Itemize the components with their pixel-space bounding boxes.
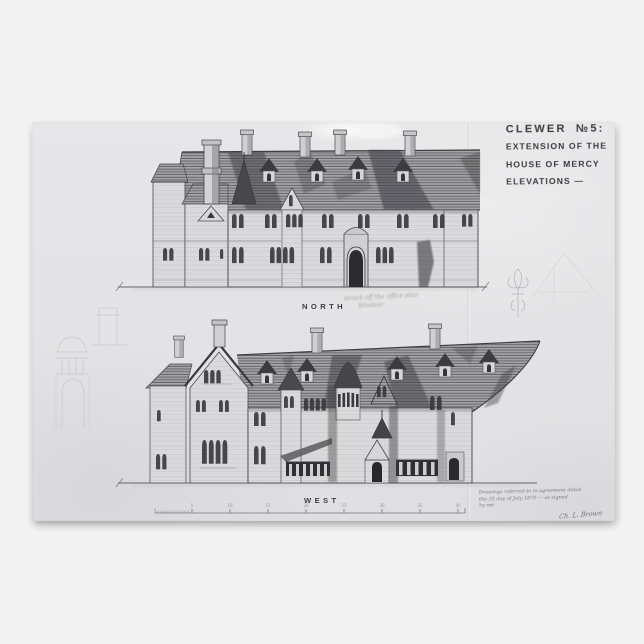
scale-tick-label: 25 — [341, 503, 347, 508]
west-elevation-drawing — [116, 320, 540, 487]
title-line-1: CLEWER №5: — [506, 123, 614, 136]
scale-tick-label: 30 — [379, 503, 385, 508]
title-block: CLEWER №5: EXTENSION OF THE HOUSE OF MER… — [506, 123, 615, 194]
scale-tick-label: 35 — [417, 503, 423, 508]
scale-tick-label: 40 — [455, 503, 461, 508]
title-line-2: EXTENSION OF THE — [506, 141, 614, 152]
margin-sketch-turret — [56, 337, 89, 430]
west-elevation-label: WEST — [304, 496, 340, 505]
paper-highlight — [351, 123, 403, 139]
title-line-4: ELEVATIONS — — [506, 176, 614, 187]
margin-sketch-frame — [92, 308, 127, 345]
scale-tick-label: 10 — [227, 503, 233, 508]
north-elevation-drawing — [116, 130, 489, 291]
product-photo-background: 5 10 15 20 25 30 35 40 CLEWER №5: EXTENS… — [0, 0, 644, 644]
scale-tick-label: 5 — [191, 503, 194, 508]
north-elevation-label: NORTH — [302, 302, 346, 311]
fleur-de-lis-sketch — [508, 269, 528, 318]
title-line-3: HOUSE OF MERCY — [506, 158, 614, 169]
gable-pencil-sketch — [532, 253, 594, 300]
poster-sheet: 5 10 15 20 25 30 35 40 CLEWER №5: EXTENS… — [32, 122, 615, 521]
agreement-note: Drawings referred to in agreement dated … — [479, 486, 609, 509]
scale-tick-label: 15 — [265, 503, 271, 508]
